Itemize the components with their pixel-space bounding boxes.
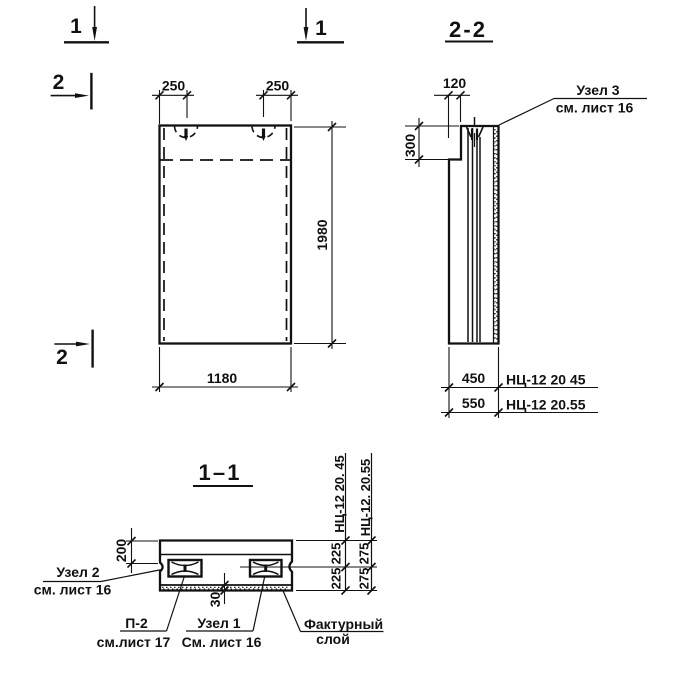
svg-text:450: 450 (462, 370, 486, 386)
svg-text:1180: 1180 (207, 370, 238, 386)
svg-text:Фактурный: Фактурный (304, 616, 383, 632)
svg-text:Узел 2: Узел 2 (56, 564, 99, 580)
svg-text:225: 225 (329, 568, 344, 590)
svg-text:Узел 1: Узел 1 (197, 615, 240, 631)
svg-text:См. лист 16: См. лист 16 (182, 634, 262, 650)
svg-text:250: 250 (266, 78, 290, 94)
svg-text:2: 2 (56, 346, 68, 369)
svg-text:1 – 1: 1 – 1 (199, 460, 240, 485)
svg-text:2 - 2: 2 - 2 (449, 17, 485, 42)
svg-text:250: 250 (162, 78, 186, 94)
svg-text:275: 275 (357, 543, 372, 565)
svg-text:30: 30 (207, 592, 223, 608)
svg-text:120: 120 (443, 75, 467, 91)
svg-text:1980: 1980 (314, 219, 330, 250)
svg-text:2: 2 (53, 71, 65, 94)
svg-text:НЦ-12 20.55: НЦ-12 20.55 (506, 397, 586, 413)
svg-text:550: 550 (462, 395, 486, 411)
svg-text:200: 200 (113, 539, 129, 563)
svg-text:см. лист 16: см. лист 16 (34, 582, 112, 598)
svg-text:НЦ-12. 20.55: НЦ-12. 20.55 (358, 459, 373, 536)
svg-text:НЦ-12 20. 45: НЦ-12 20. 45 (332, 455, 347, 532)
svg-text:225: 225 (329, 543, 344, 565)
svg-text:1: 1 (70, 15, 82, 38)
svg-text:300: 300 (402, 134, 418, 158)
svg-text:слой: слой (316, 631, 350, 647)
svg-text:Узел 3: Узел 3 (576, 82, 619, 98)
svg-text:см. лист 16: см. лист 16 (556, 100, 634, 116)
svg-text:см.лист 17: см.лист 17 (97, 634, 171, 650)
svg-text:П-2: П-2 (125, 615, 148, 631)
svg-text:275: 275 (357, 568, 372, 590)
svg-text:1: 1 (315, 17, 327, 40)
svg-text:НЦ-12 20 45: НЦ-12 20 45 (506, 372, 586, 388)
